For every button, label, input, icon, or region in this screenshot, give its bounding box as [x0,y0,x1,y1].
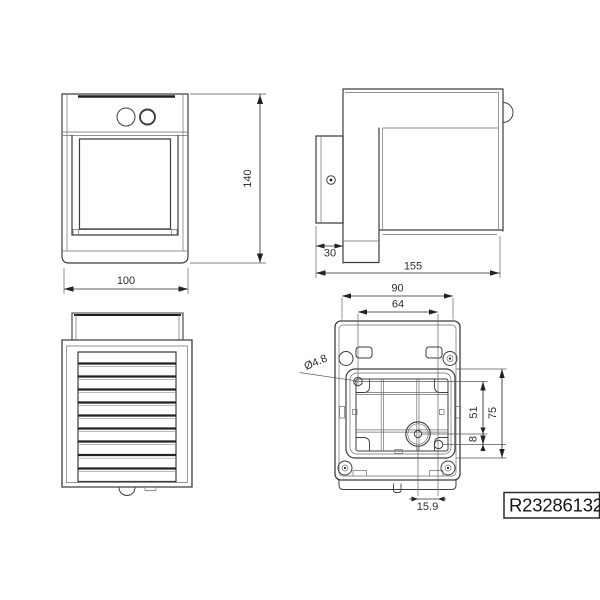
sensor-circle-small [140,110,155,125]
dim-label-cable-offset-h: 15.9 [417,501,438,513]
recess-corner-gussets [356,379,448,451]
back-small-tabs [340,407,461,476]
front-dimension-lines [64,94,260,289]
back-bottom-flap [339,480,456,490]
side-wall-plate [316,136,343,223]
louver-top-plate [72,313,183,340]
keyhole-slot-right [426,347,442,358]
side-body-detail [343,93,499,242]
article-number-text: R23286132 [509,495,600,516]
technical-drawing-page: 140 100 30 155 [0,0,600,600]
front-extension-lines [64,94,266,294]
front-view: 140 100 [62,94,266,294]
article-number-box: R23286132 [504,493,600,519]
dim-label-total-depth: 155 [404,261,422,273]
front-detail-lines [62,94,188,251]
dim-label-recess-height: 75 [487,407,499,419]
sensor-bump-profile [503,103,513,123]
recess-panel [356,379,448,451]
lamp-dimension-drawing: 140 100 30 155 [0,0,600,600]
bottom-sensor-bump [119,488,135,496]
sensor-circle-large [117,108,135,126]
side-body-outline [343,89,503,263]
bottom-switch-tab [145,487,156,490]
dim-label-height: 140 [242,169,254,187]
corner-screw-top-right [443,352,457,366]
back-view: 90 64 Ø4.8 51 8 75 15.9 [300,283,507,514]
back-bottom-notch [394,484,402,493]
dim-label-width: 100 [117,275,135,287]
dim-label-hole-spacing: 64 [392,299,404,311]
mounting-screw-dot [330,179,333,182]
recess-rib-grid [356,379,448,451]
louver-view [62,313,192,496]
corner-screw-bottom-left [338,461,352,475]
front-window-frame [72,136,178,236]
front-body-outline [62,94,188,263]
side-view: 30 155 [316,89,513,278]
front-dimension-arrows [64,95,263,292]
dim-label-mount-width: 90 [391,283,403,295]
dim-label-cable-offset-v: 8 [468,436,480,442]
secondary-hole [434,440,442,448]
corner-boss-top-left [339,352,353,366]
dim-label-plate-depth: 30 [324,248,336,260]
back-extension-lines [300,298,507,496]
louver-panel-frame [78,352,176,482]
dim-label-hole-to-cable: 51 [468,406,480,418]
louver-top-plate-inner [76,313,179,340]
dim-label-hole-diameter: Ø4.8 [303,353,330,373]
back-dimension-lines [342,296,502,499]
keyhole-slot-left [356,347,372,358]
back-body-outline [335,321,460,480]
louver-slats [78,364,176,469]
louver-body-outline [62,340,192,487]
